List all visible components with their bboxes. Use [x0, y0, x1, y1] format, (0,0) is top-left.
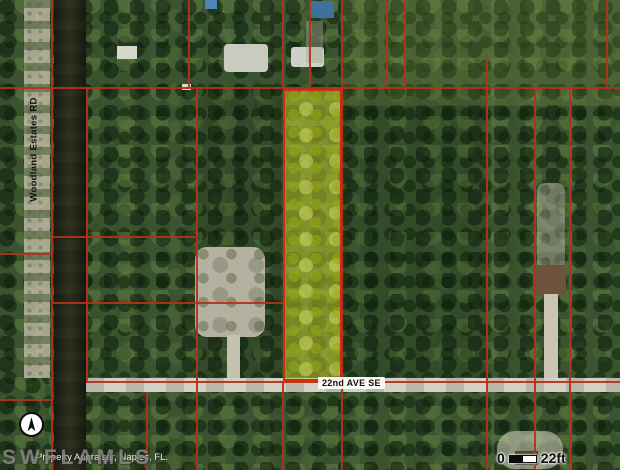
parcel-boundary-line — [51, 236, 197, 238]
parcel-boundary-line — [569, 88, 571, 470]
parcel-boundary-line — [341, 0, 343, 470]
parcel-boundary-line — [282, 383, 284, 470]
parcel-boundary-line — [309, 0, 311, 88]
parcel-boundary-line — [0, 253, 51, 255]
parcel-boundary-line — [86, 88, 88, 383]
parcel-boundary-line — [386, 0, 388, 88]
scale-bar-segment — [509, 455, 537, 463]
parcel-lines-layer — [0, 0, 620, 470]
watermark-text: SWFLAMLS — [2, 446, 153, 470]
parcel-boundary-line — [188, 0, 190, 88]
parcel-boundary-line — [606, 0, 608, 88]
scale-end-label: 22ft — [541, 451, 566, 466]
map-canvas[interactable]: Woodland Estates RD 22nd AVE SE Property… — [0, 0, 620, 470]
parcel-boundary-line — [51, 0, 53, 470]
parcel-boundary-line — [0, 399, 51, 401]
parcel-boundary-line — [486, 55, 488, 470]
road-label-woodland-estates: Woodland Estates RD — [29, 90, 40, 210]
north-arrow-icon — [19, 412, 44, 437]
scale-start-label: 0 — [497, 451, 505, 466]
parcel-boundary-line — [404, 0, 406, 88]
parcel-boundary-line — [534, 88, 536, 470]
road-label-22nd-ave: 22nd AVE SE — [318, 377, 385, 389]
parcel-boundary-line — [282, 0, 284, 90]
scale-bar: 0 22ft — [497, 451, 566, 466]
parcel-boundary-line — [196, 88, 198, 470]
